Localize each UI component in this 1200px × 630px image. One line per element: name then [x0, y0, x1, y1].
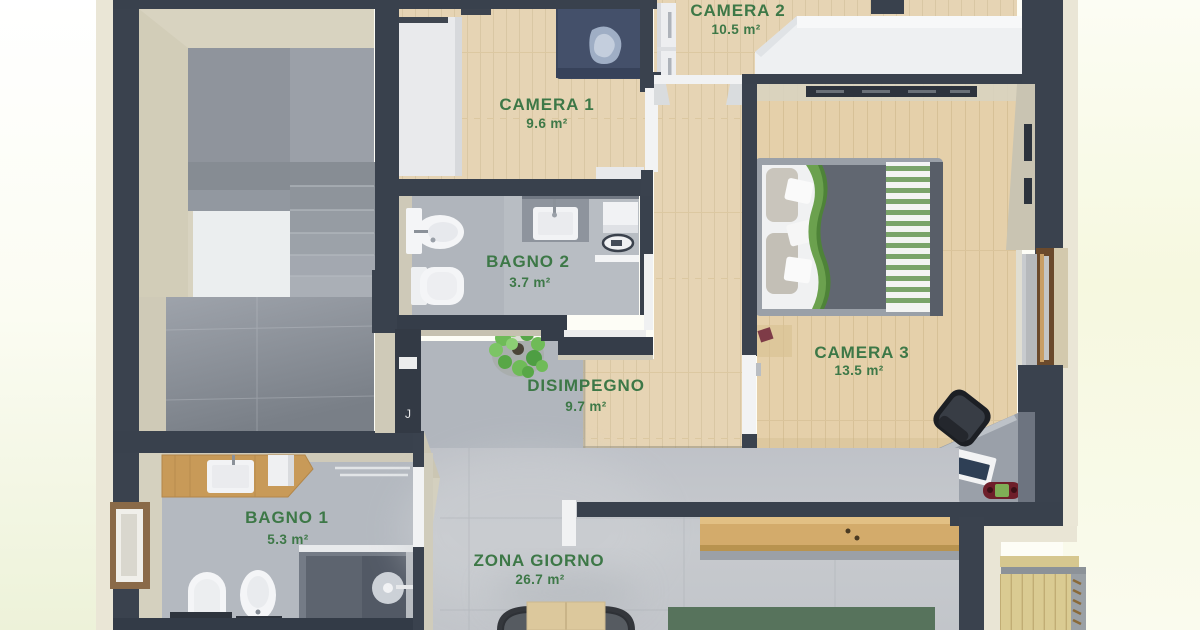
svg-text:BAGNO 1: BAGNO 1	[245, 508, 329, 527]
svg-text:CAMERA 1: CAMERA 1	[499, 95, 594, 114]
svg-text:9.7 m²: 9.7 m²	[565, 399, 607, 414]
svg-text:ZONA GIORNO: ZONA GIORNO	[473, 551, 604, 570]
svg-text:BAGNO 2: BAGNO 2	[486, 252, 570, 271]
svg-text:26.7 m²: 26.7 m²	[515, 572, 564, 587]
svg-text:5.3 m²: 5.3 m²	[267, 532, 309, 547]
svg-text:9.6 m²: 9.6 m²	[526, 116, 568, 131]
svg-text:10.5 m²: 10.5 m²	[711, 22, 760, 37]
svg-text:13.5 m²: 13.5 m²	[834, 363, 883, 378]
svg-text:J: J	[405, 407, 411, 421]
svg-text:DISIMPEGNO: DISIMPEGNO	[527, 376, 645, 395]
svg-text:CAMERA 2: CAMERA 2	[690, 1, 785, 20]
svg-text:3.7 m²: 3.7 m²	[509, 275, 551, 290]
svg-text:CAMERA 3: CAMERA 3	[814, 343, 909, 362]
